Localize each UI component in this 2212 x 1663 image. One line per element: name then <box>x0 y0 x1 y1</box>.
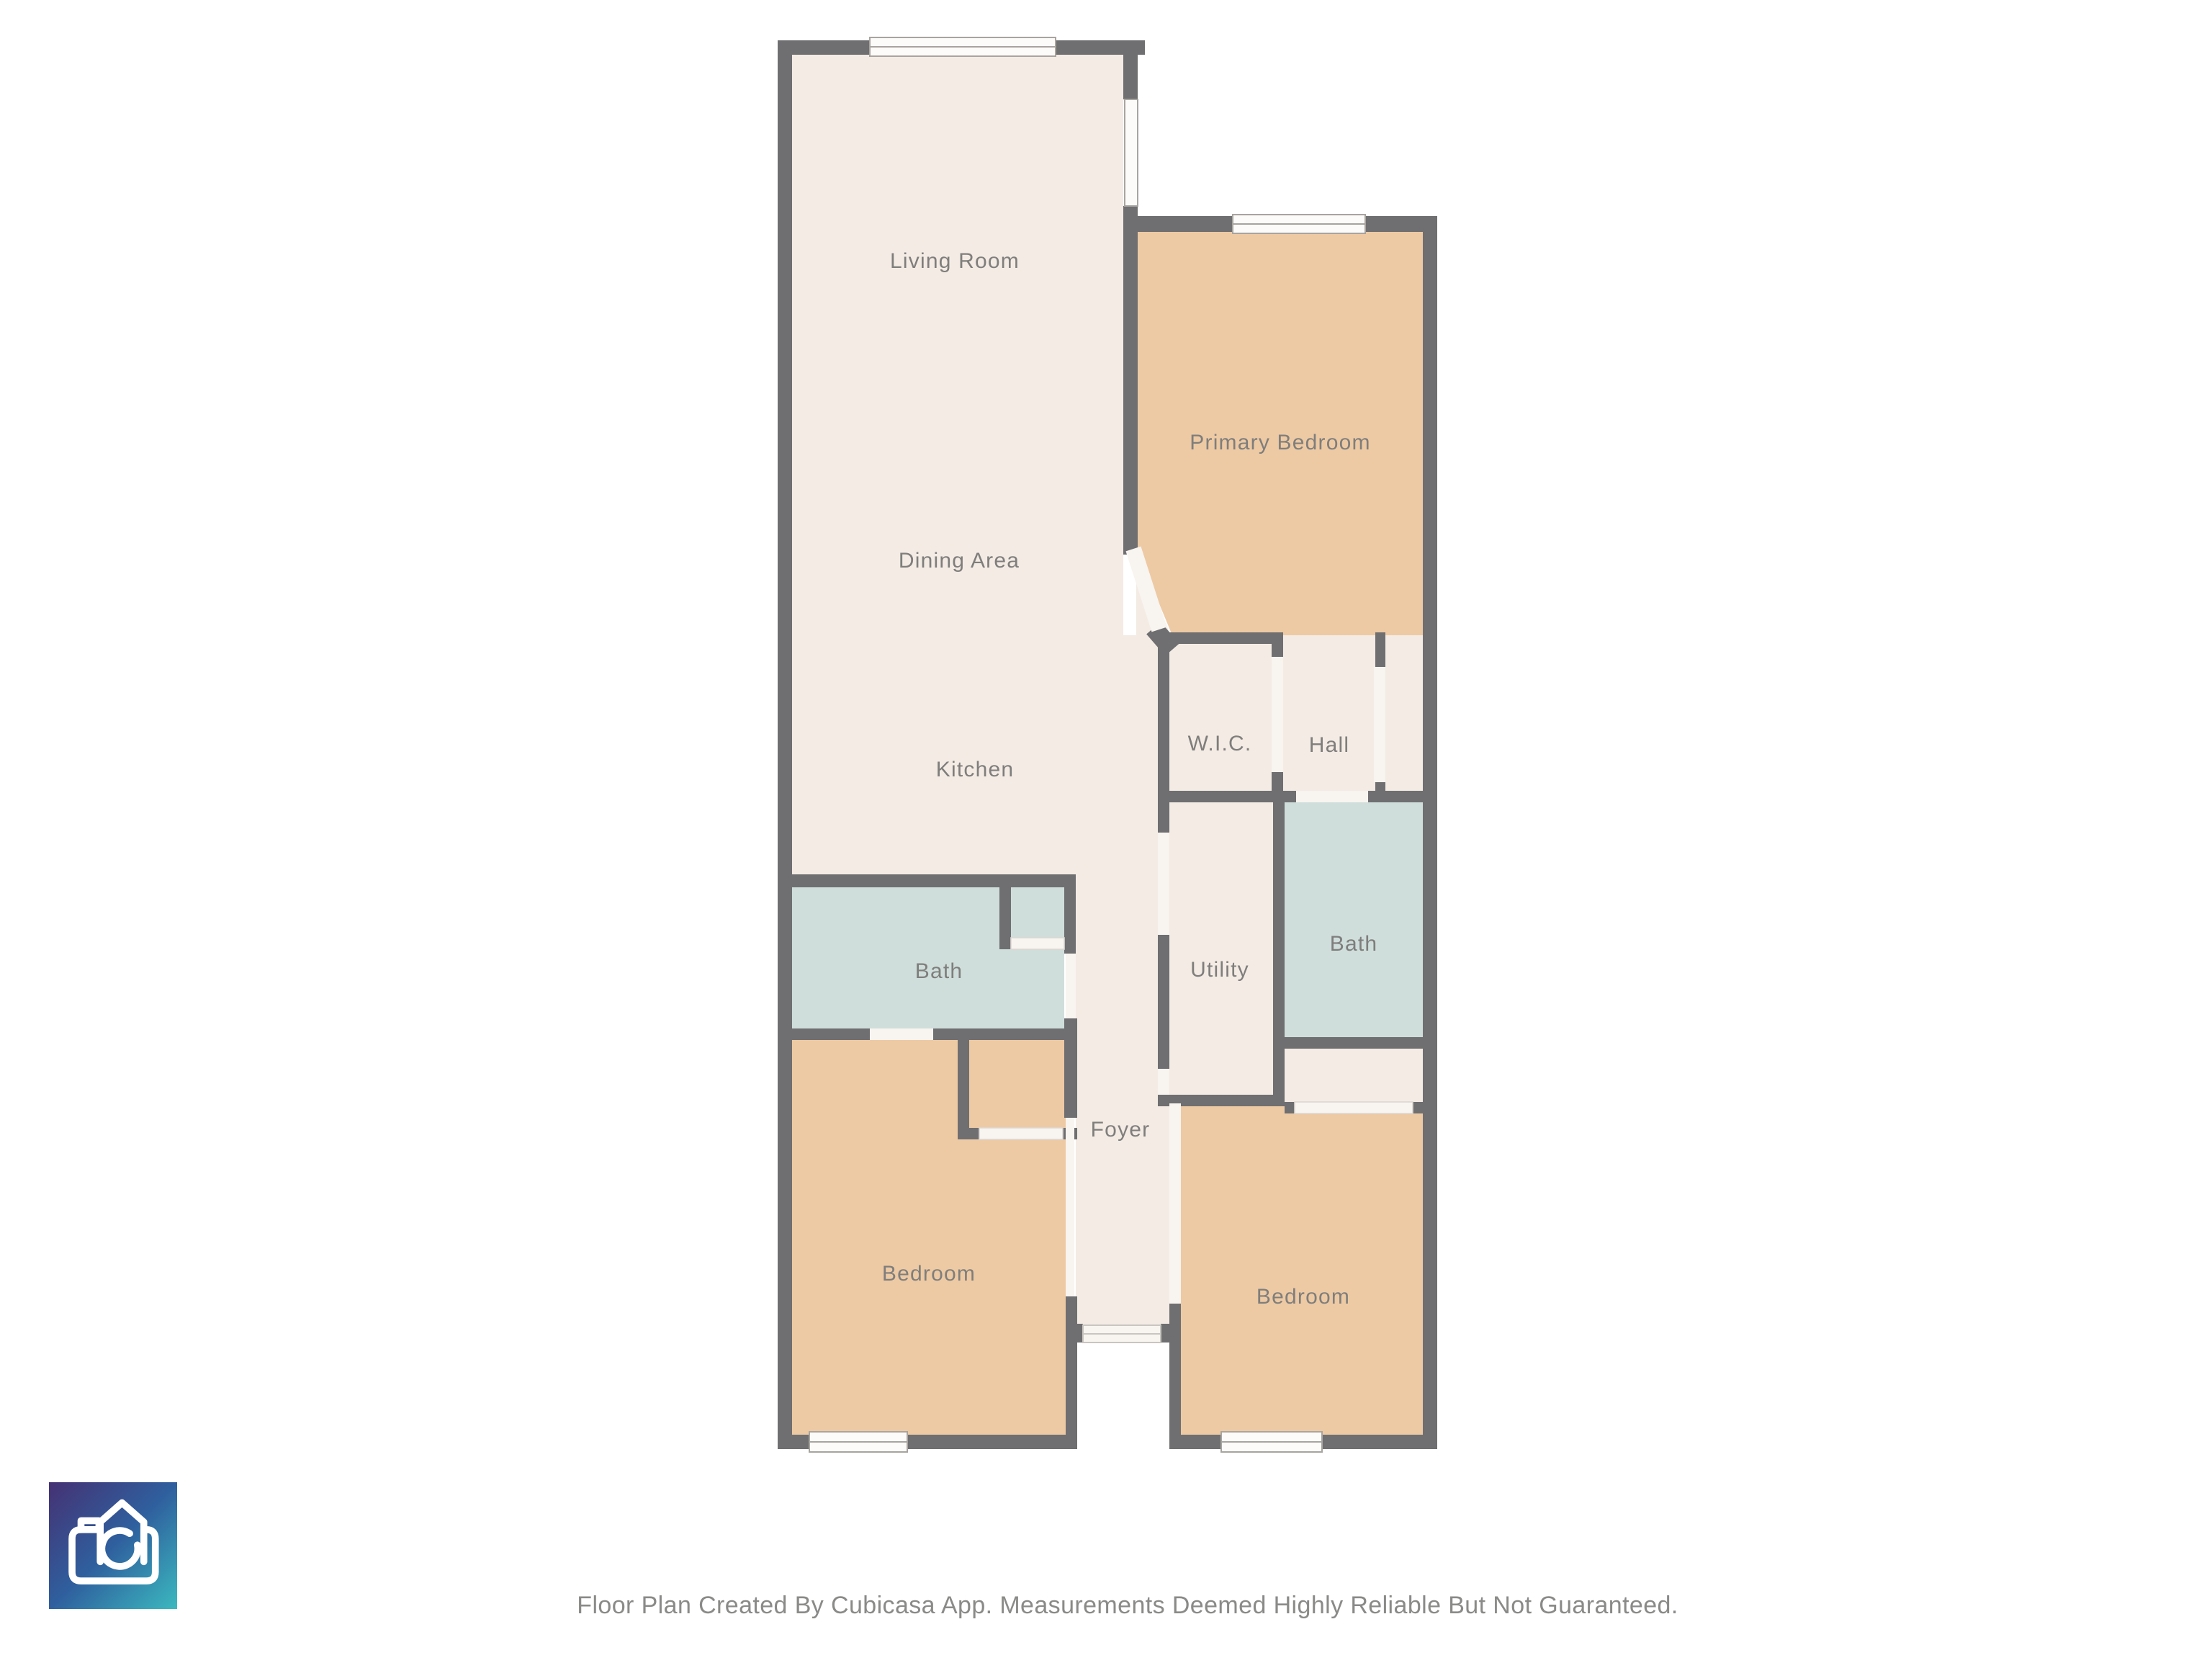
door-pocket-to-bedroom-right <box>1295 1102 1413 1113</box>
wall-living-east-upper <box>1123 55 1138 99</box>
floor-hall-closet <box>1385 635 1423 795</box>
wall-bath-left-top <box>783 874 1076 887</box>
room-label-bedroom-right: Bedroom <box>1256 1285 1350 1309</box>
room-label-primary-bedroom: Primary Bedroom <box>1190 431 1370 454</box>
wall-utility-west-mid <box>1158 935 1169 1069</box>
wall-bath-left-alcove-west <box>999 874 1011 949</box>
wall-hall-closet-stub-top <box>1375 632 1385 667</box>
wall-outer-left <box>778 40 792 1449</box>
room-label-kitchen: Kitchen <box>936 758 1014 781</box>
wall-outer-bottom-right-a <box>1169 1435 1221 1449</box>
door-bath-left-to-bedroom <box>870 1028 933 1040</box>
wall-vestibule-bottom-a <box>958 1128 979 1139</box>
wall-outer-right <box>1423 216 1437 1449</box>
door-hall-to-closet <box>1374 667 1385 782</box>
door-vestibule-to-bedroom <box>979 1128 1063 1139</box>
page: Living Room Dining Area Kitchen Primary … <box>0 0 2212 1659</box>
wall-wic-west <box>1158 647 1169 833</box>
wall-wic-east-top <box>1272 632 1283 657</box>
door-utility-west-lower <box>1158 1069 1169 1095</box>
wall-bath-left-east-lower <box>1064 1018 1077 1118</box>
door-bedroom-left <box>1066 1118 1074 1296</box>
floor-bedroom-left <box>792 1040 1066 1435</box>
cubicasa-logo <box>49 1482 177 1609</box>
wall-outer-bottom-right-b <box>1322 1435 1437 1449</box>
wall-primary-bedroom-bottom <box>1158 632 1283 644</box>
wall-utility-east <box>1273 802 1285 1106</box>
floor-plan-canvas: Living Room Dining Area Kitchen Primary … <box>0 0 2212 1659</box>
room-label-wic: W.I.C. <box>1188 732 1252 756</box>
room-label-utility: Utility <box>1190 958 1249 982</box>
room-label-living-room: Living Room <box>890 249 1020 273</box>
door-bath-left-alcove <box>1011 938 1064 949</box>
floor-bath-right <box>1285 802 1423 1037</box>
room-label-foyer: Foyer <box>1091 1118 1151 1142</box>
floor-hall <box>1283 635 1375 791</box>
wall-vestibule-west <box>958 1040 969 1139</box>
floor-bath-left <box>792 887 1064 1028</box>
window-living-room-east <box>1125 99 1138 206</box>
door-wic-to-hall <box>1272 657 1283 772</box>
floor-bedroom-right-b <box>1285 1113 1423 1435</box>
wall-bath-left-east-upper <box>1064 874 1076 954</box>
footer-disclaimer: Floor Plan Created By Cubicasa App. Meas… <box>577 1592 1678 1619</box>
floor-wic <box>1169 644 1272 791</box>
wall-wing-top-left <box>1123 216 1233 232</box>
door-bath-left-east <box>1066 954 1076 1018</box>
door-bedroom-right <box>1169 1103 1181 1304</box>
wall-bedroom-right-west-lower <box>1169 1304 1181 1435</box>
door-utility-west <box>1158 833 1169 935</box>
wall-entry-nub-right <box>1161 1324 1181 1342</box>
wall-bath-left-bottom-b <box>933 1028 1066 1040</box>
wall-entry-nub-left <box>1066 1324 1083 1342</box>
room-label-bedroom-left: Bedroom <box>882 1262 976 1286</box>
wall-outer-bottom-left-b <box>907 1435 1077 1449</box>
wall-bedroom-left-east-lower <box>1066 1296 1077 1435</box>
room-label-hall: Hall <box>1309 733 1349 757</box>
floor-living-dining-kitchen <box>792 55 1123 874</box>
room-label-bath-right: Bath <box>1330 932 1378 956</box>
floor-bedroom-right-a <box>1181 1106 1285 1435</box>
wall-wic-bottom <box>1158 791 1296 802</box>
room-label-bath-left: Bath <box>915 959 963 983</box>
wall-bath-right-bottom <box>1273 1037 1437 1049</box>
floor-bath-right-pocket <box>1285 1049 1423 1102</box>
wall-bath-left-bottom-a <box>783 1028 870 1040</box>
wall-pocket-nub-right <box>1413 1102 1423 1113</box>
room-label-dining-area: Dining Area <box>899 549 1020 573</box>
door-hall-to-bath <box>1296 791 1368 802</box>
wall-pocket-nub-left <box>1285 1102 1295 1113</box>
wall-living-east-mid <box>1123 206 1138 555</box>
floor-utility <box>1169 802 1273 1095</box>
